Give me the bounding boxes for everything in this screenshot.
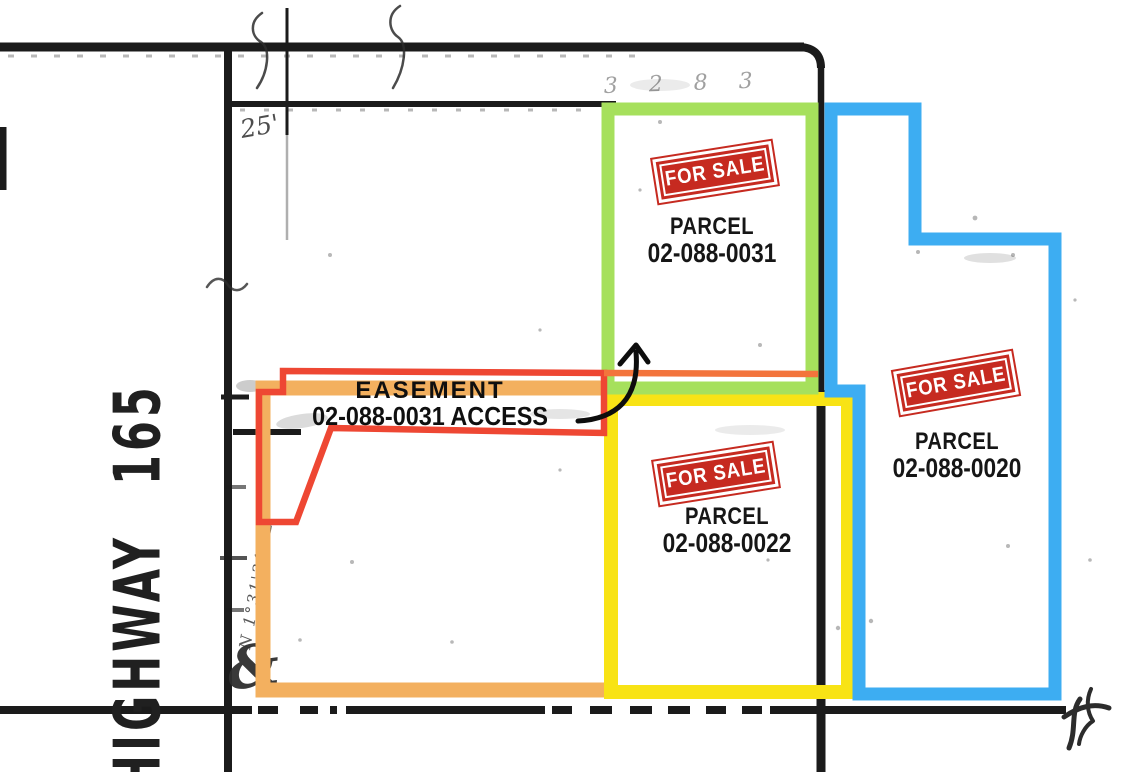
parcel-0020-label: PARCEL 02-088-0020 [893,430,1022,482]
easement-subtitle: 02-088-0031 ACCESS [312,403,548,429]
dimension-note: 25' [237,109,281,144]
highway-165-label: HIGHWAY 165 [101,383,176,772]
easement-label: EASEMENT 02-088-0031 ACCESS [299,379,561,429]
easement-title: EASEMENT [299,379,561,403]
parcel-number: 02-088-0031 [648,240,777,267]
parcel-0022-label: PARCEL 02-088-0022 [663,505,792,557]
parcel-number: 02-088-0022 [663,530,792,557]
parcel-0031-label: PARCEL 02-088-0031 [648,215,777,267]
survey-scribble [1064,689,1109,748]
parcel-label-word: PARCEL [648,215,777,239]
parcel-label-word: PARCEL [893,430,1022,454]
parcel-label-word: PARCEL [663,505,792,529]
parcel-number: 02-088-0020 [893,455,1022,482]
plat-map: 25' 3 2 8 3 N 1°31'31" E & [0,0,1144,772]
